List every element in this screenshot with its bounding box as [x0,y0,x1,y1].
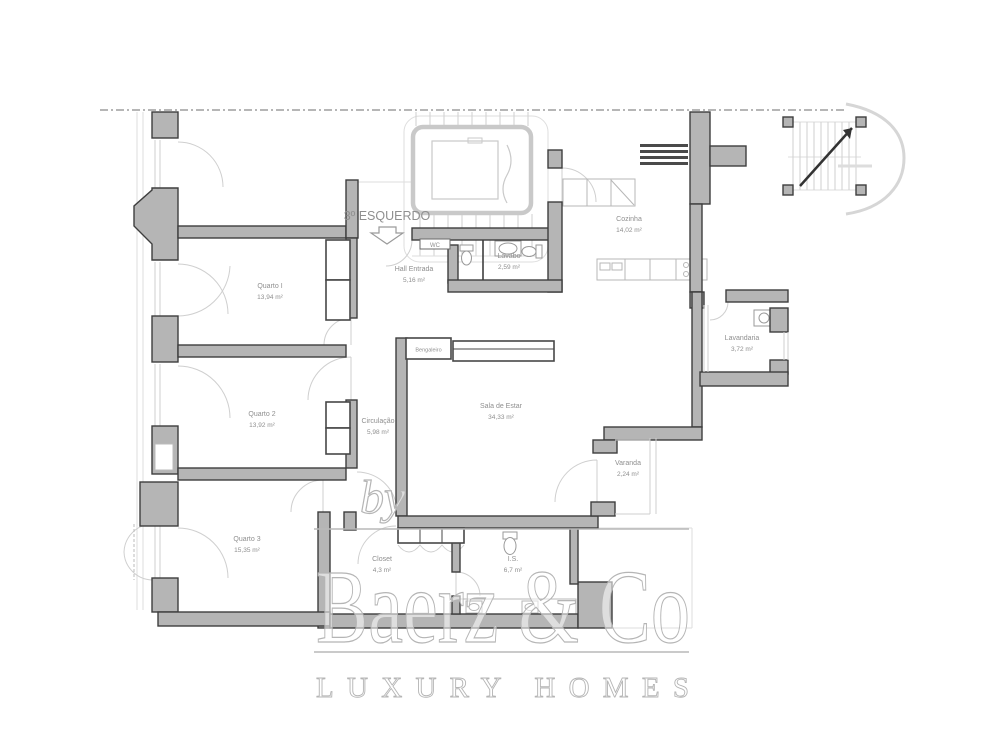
svg-text:13,92 m²: 13,92 m² [249,422,275,429]
small-label-wc: WC [430,243,441,249]
small-label-bengaleiro: Bengaleiro [415,348,441,354]
svg-text:15,35 m²: 15,35 m² [234,547,260,554]
room-label-cozinha: Cozinha14,02 m² [616,216,643,234]
svg-text:Varanda: Varanda [615,460,641,467]
room-label-varanda: Varanda2,24 m² [615,460,641,478]
wardrobe-quarto1 [326,240,350,320]
svg-text:5,98 m²: 5,98 m² [367,429,390,436]
svg-text:Quarto 3: Quarto 3 [233,536,260,543]
svg-text:Sala de Estar: Sala de Estar [480,403,523,410]
svg-text:Quarto 2: Quarto 2 [248,411,275,418]
svg-text:13,94 m²: 13,94 m² [257,294,283,301]
toilet-wc [460,245,473,265]
svg-text:3,72 m²: 3,72 m² [731,346,754,353]
room-label-circulacao: Circulação5,98 m² [361,418,394,436]
svg-text:Quarto I: Quarto I [257,283,282,290]
svg-text:34,33 m²: 34,33 m² [488,414,514,421]
svg-text:Lavandaria: Lavandaria [725,335,760,342]
watermark-arc [846,104,904,214]
svg-text:Cozinha: Cozinha [616,216,642,223]
toilet-lavabo [522,245,542,258]
elevator [413,127,531,213]
watermark-by: by [360,471,406,524]
floor-plan-page: 3º ESQUERDO Quarto I13,94 m²Quarto 213,9… [0,0,1000,750]
svg-text:2,24 m²: 2,24 m² [617,471,640,478]
small-labels: BengaleiroWC [415,243,441,354]
svg-text:5,16 m²: 5,16 m² [403,277,426,284]
room-label-lavandaria: Lavandaria3,72 m² [725,335,760,353]
watermark-tagline: LUXURY HOMES [316,672,689,704]
watermark-brand: Baerz & Co [316,548,690,665]
room-label-hall: Hall Entrada5,16 m² [395,266,434,284]
room-label-sala: Sala de Estar34,33 m² [480,403,523,421]
room-label-quarto1: Quarto I13,94 m² [257,283,283,301]
floor-plan-drawing: 3º ESQUERDO Quarto I13,94 m²Quarto 213,9… [0,0,1000,750]
floor-level-label: 3º ESQUERDO [344,209,431,223]
svg-text:Circulação: Circulação [361,418,394,425]
svg-text:Hall Entrada: Hall Entrada [395,266,434,273]
entrance-arrow-icon [371,227,403,244]
closet-boxes-bottom [398,528,464,543]
room-label-quarto2: Quarto 213,92 m² [248,411,275,429]
room-label-quarto3: Quarto 315,35 m² [233,536,260,554]
wardrobe-quarto2 [326,402,350,454]
svg-text:Lavabo: Lavabo [498,253,521,260]
svg-text:14,02 m²: 14,02 m² [616,227,642,234]
svg-text:2,59 m²: 2,59 m² [498,264,521,271]
